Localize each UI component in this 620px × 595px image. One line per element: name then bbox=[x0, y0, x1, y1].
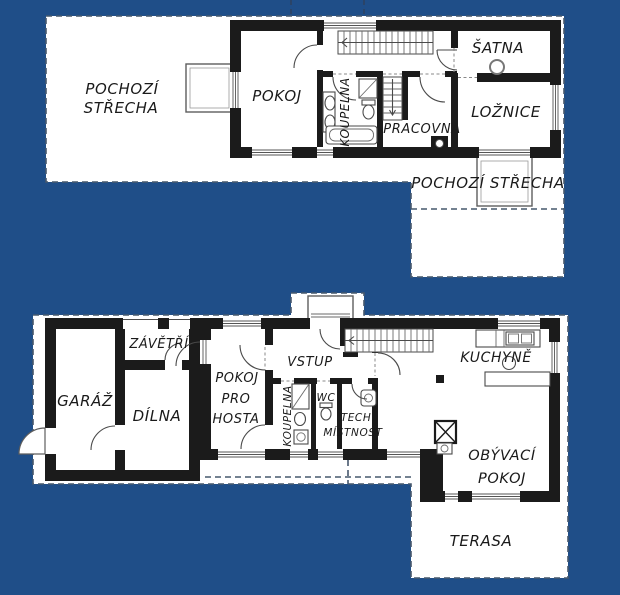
room-label-kuchyne: KUCHYNĚ bbox=[460, 348, 532, 366]
window bbox=[479, 147, 530, 158]
room-label-obyvaci-pokoj: POKOJ bbox=[478, 471, 526, 487]
room-label-tech-mistnost: TECH. bbox=[341, 412, 376, 424]
washing-machine-symbol bbox=[294, 430, 308, 444]
window bbox=[387, 449, 420, 460]
entry-door-opening bbox=[310, 318, 340, 329]
column-symbol bbox=[436, 375, 444, 383]
room-label-pokoj: POKOJ bbox=[252, 87, 302, 105]
toilet-symbol bbox=[362, 100, 375, 119]
vent-pipe-symbol bbox=[490, 60, 504, 74]
room-label-zavetri: ZÁVĚTŘÍ bbox=[128, 336, 189, 352]
room-label-koupelna: KOUPELNA bbox=[338, 77, 352, 146]
chimney-symbol bbox=[431, 136, 448, 152]
shower-symbol bbox=[292, 384, 309, 409]
sink-symbol bbox=[325, 96, 335, 110]
window bbox=[223, 318, 261, 329]
window bbox=[498, 318, 540, 329]
sink-symbol bbox=[295, 413, 306, 426]
room-label-pokoj-pro-hosta: POKOJ bbox=[215, 371, 258, 386]
window bbox=[318, 449, 343, 460]
room-label-pokoj-pro-hosta: PRO bbox=[222, 392, 251, 407]
kitchen-island bbox=[485, 372, 550, 386]
lower-staircase bbox=[345, 329, 433, 352]
room-label-tech-mistnost: MÍSTNOST bbox=[323, 426, 383, 439]
window bbox=[230, 72, 241, 108]
left-dormer-box bbox=[186, 64, 233, 112]
garage-door-opening bbox=[45, 428, 56, 454]
floor-plan-drawing: POCHOZÍ STŘECHA POKOJ KOUPELNA ŠATNA PRA… bbox=[0, 0, 620, 595]
window bbox=[290, 449, 308, 460]
room-label-terasa: TERASA bbox=[450, 532, 513, 550]
room-label-pracovna: PRACOVNA bbox=[383, 122, 460, 137]
window bbox=[472, 491, 520, 502]
side-door-opening bbox=[200, 340, 211, 364]
window bbox=[324, 20, 376, 31]
window bbox=[317, 147, 333, 158]
window bbox=[218, 449, 265, 460]
window bbox=[445, 491, 458, 502]
room-label-pochozi-strecha-right: POCHOZÍ STŘECHA bbox=[411, 173, 564, 192]
room-label-pochozi-strecha: STŘECHA bbox=[84, 98, 159, 117]
stove-symbol bbox=[506, 332, 534, 345]
room-label-dilna: DÍLNA bbox=[133, 406, 182, 425]
floor-plan-page: POCHOZÍ STŘECHA POKOJ KOUPELNA ŠATNA PRA… bbox=[0, 0, 620, 595]
porch-column bbox=[158, 318, 169, 329]
room-label-wc: WC bbox=[317, 392, 336, 404]
small-staircase bbox=[383, 77, 402, 120]
shower-symbol bbox=[359, 79, 377, 98]
main-staircase bbox=[338, 31, 433, 54]
room-label-loznice: LOŽNICE bbox=[471, 102, 541, 121]
room-label-pochozi-strecha: POCHOZÍ bbox=[85, 79, 159, 98]
room-label-obyvaci-pokoj: OBÝVACÍ bbox=[468, 447, 537, 464]
room-label-satna: ŠATNA bbox=[472, 38, 524, 57]
toilet-symbol bbox=[320, 403, 332, 420]
room-label-vstup: VSTUP bbox=[287, 355, 332, 370]
room-label-pokoj-pro-hosta: HOSTA bbox=[213, 412, 260, 427]
window bbox=[549, 342, 560, 373]
room-label-koupelna: KOUPELNA bbox=[282, 385, 294, 446]
window bbox=[550, 85, 561, 130]
room-label-garaz: GARÁŽ bbox=[57, 391, 113, 410]
window bbox=[252, 147, 292, 158]
